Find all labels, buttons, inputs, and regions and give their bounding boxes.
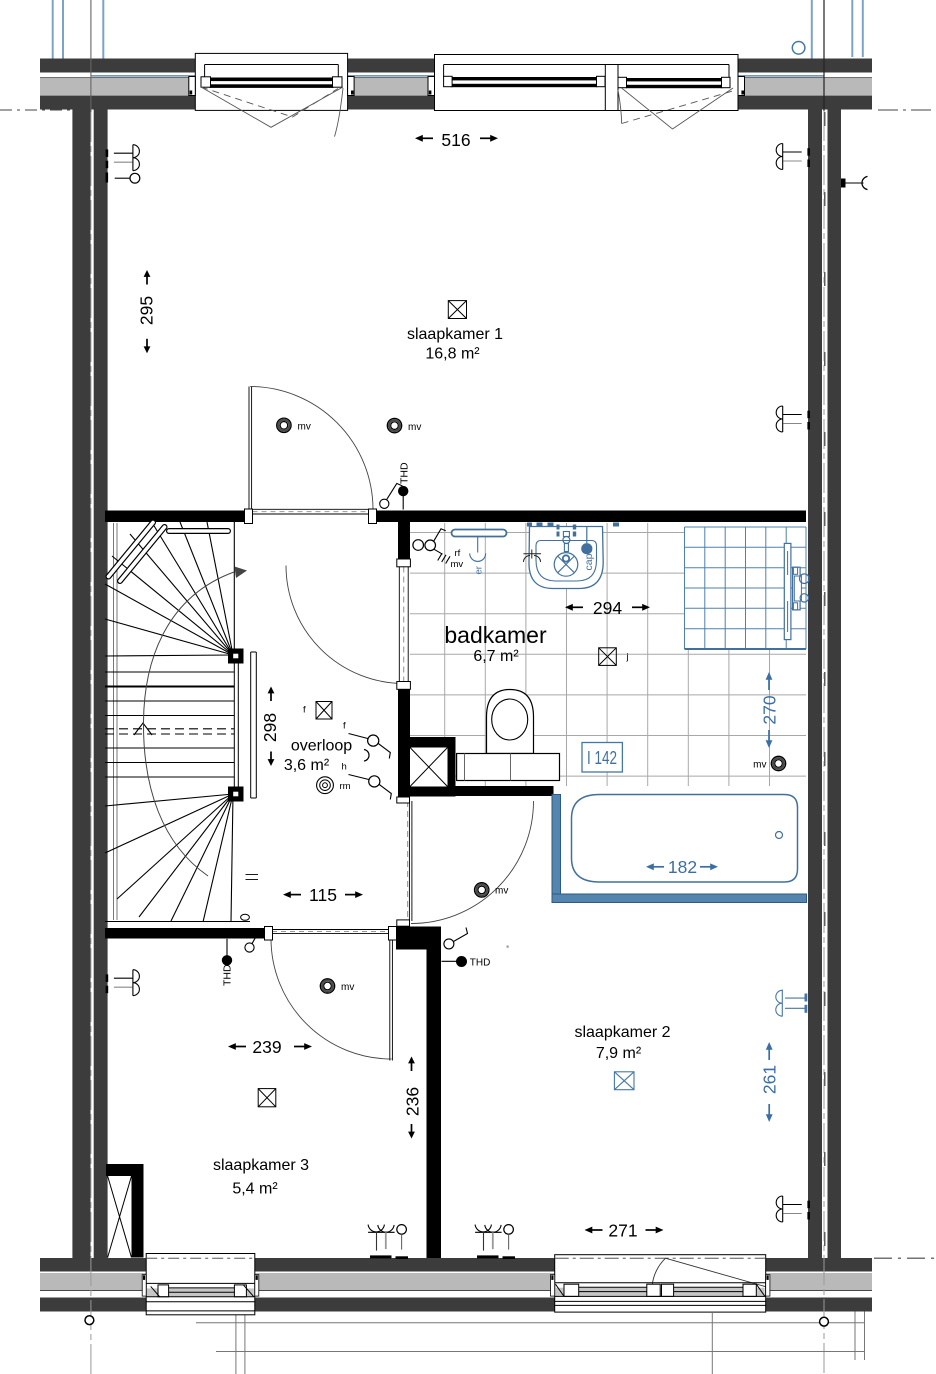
svg-text:298: 298 [260,713,280,742]
svg-text:slaapkamer 3: slaapkamer 3 [213,1157,309,1174]
svg-text:badkamer: badkamer [444,622,547,648]
svg-text:182: 182 [668,857,697,877]
svg-text:295: 295 [137,296,157,325]
svg-text:236: 236 [403,1087,423,1116]
svg-text:THD: THD [222,964,234,986]
svg-text:f: f [303,705,306,716]
svg-text:115: 115 [309,885,337,905]
svg-text:294: 294 [593,598,622,618]
svg-text:270: 270 [760,695,780,724]
svg-text:rf: rf [455,548,461,559]
svg-text:slaapkamer 2: slaapkamer 2 [574,1024,670,1041]
svg-text:3,6 m²: 3,6 m² [284,757,330,774]
svg-text:cap: cap [583,553,595,570]
svg-text:THD: THD [399,462,411,484]
svg-text:mv: mv [341,982,354,993]
svg-text:mv: mv [298,422,311,433]
svg-text:f: f [343,721,346,732]
svg-text:6,7 m²: 6,7 m² [473,648,519,665]
svg-text:I 142: I 142 [587,748,617,769]
svg-text:516: 516 [441,130,470,150]
svg-text:mv: mv [753,759,766,770]
svg-text:7,9 m²: 7,9 m² [596,1045,642,1062]
svg-text:mv: mv [451,559,464,570]
svg-text:THD: THD [470,957,491,968]
svg-text:5,4 m²: 5,4 m² [232,1181,278,1198]
svg-text:261: 261 [760,1065,780,1094]
svg-text:rm: rm [340,781,351,792]
svg-text:mv: mv [495,886,508,897]
svg-text:16,8 m²: 16,8 m² [425,346,480,363]
svg-text:slaapkamer 1: slaapkamer 1 [407,326,503,343]
svg-text:mv: mv [408,422,421,433]
svg-text:j: j [626,652,629,663]
svg-text:239: 239 [252,1037,281,1057]
svg-text:271: 271 [608,1220,637,1240]
svg-text:overloop: overloop [291,738,352,755]
svg-text:h: h [342,762,347,773]
svg-text:er: er [474,566,485,574]
